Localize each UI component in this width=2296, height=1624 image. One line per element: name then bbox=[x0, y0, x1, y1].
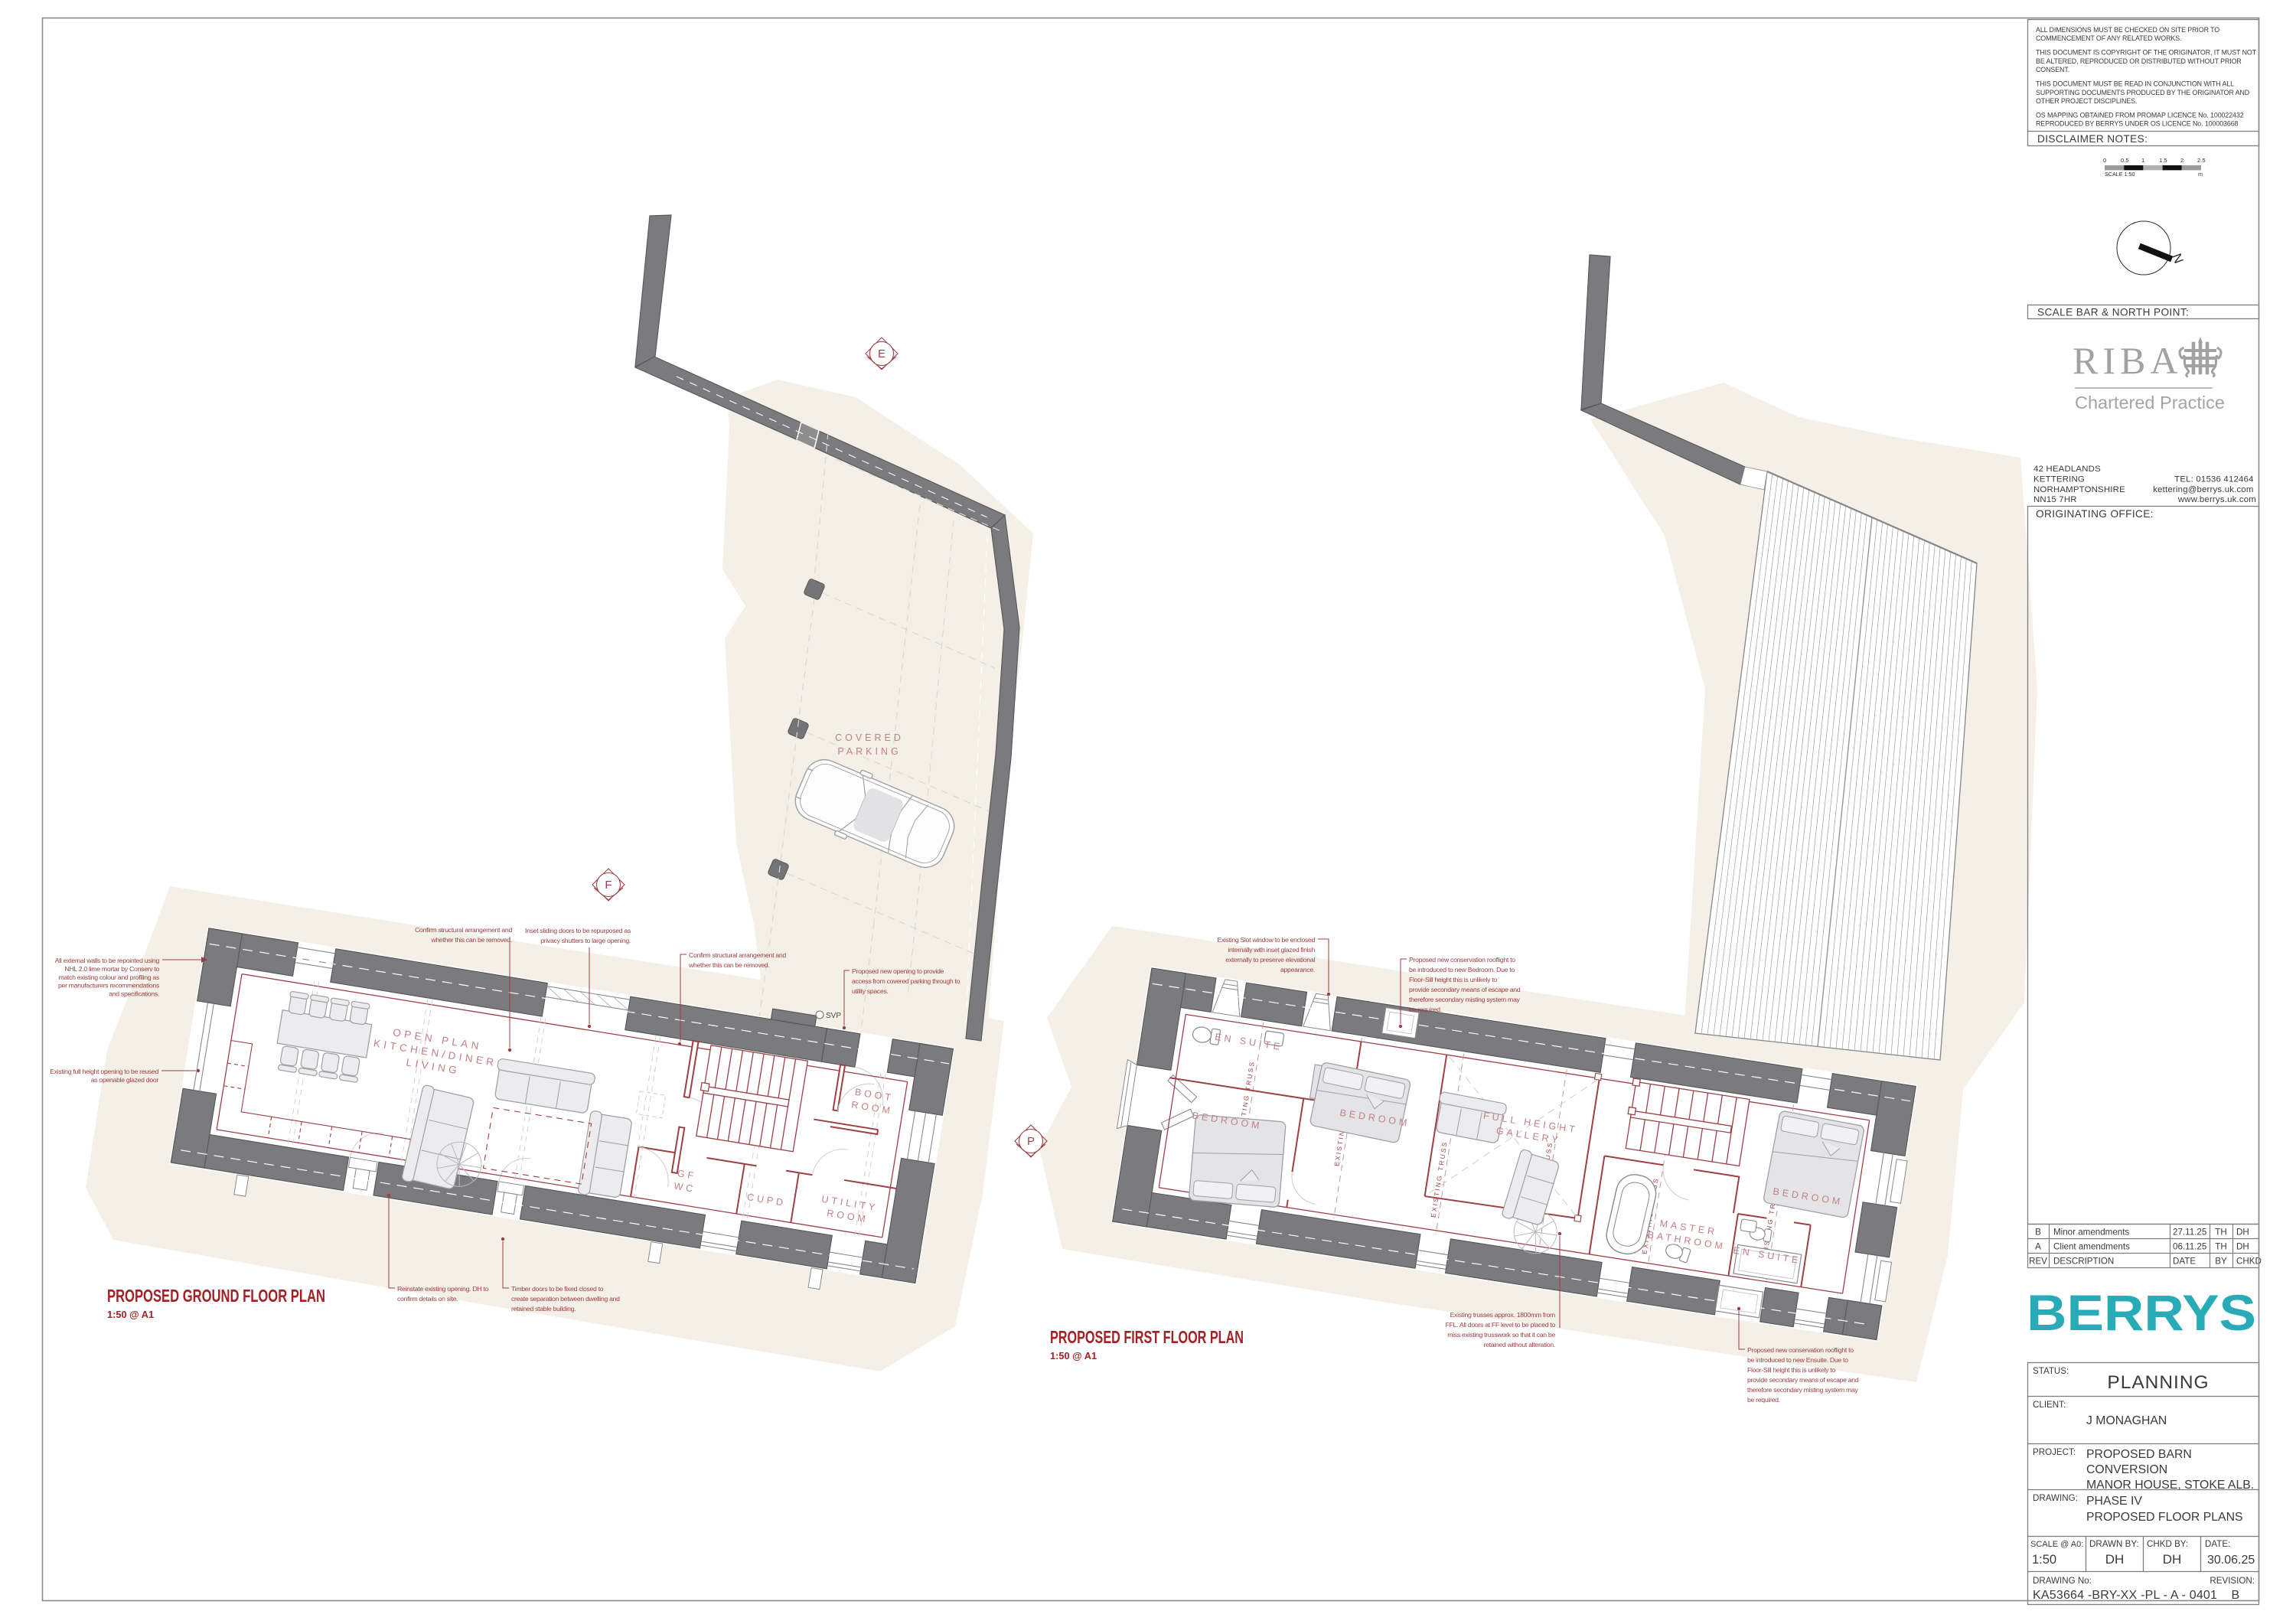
svg-text:E: E bbox=[878, 347, 885, 360]
svg-text:SCALE 1:50: SCALE 1:50 bbox=[2105, 171, 2135, 178]
svg-text:PARKING: PARKING bbox=[837, 746, 901, 757]
svg-text:DISCLAIMER NOTES:: DISCLAIMER NOTES: bbox=[2037, 133, 2148, 145]
svg-text:1:50 @ A1: 1:50 @ A1 bbox=[107, 1309, 154, 1320]
svg-text:CLIENT:: CLIENT: bbox=[2033, 1400, 2066, 1410]
svg-text:F: F bbox=[605, 879, 612, 892]
svg-text:RIBA: RIBA bbox=[2073, 339, 2182, 382]
svg-text:Client amendments: Client amendments bbox=[2053, 1242, 2130, 1252]
svg-text:SCALE @ A0:: SCALE @ A0: bbox=[2030, 1540, 2083, 1549]
svg-text:DESCRIPTION: DESCRIPTION bbox=[2053, 1257, 2114, 1267]
svg-text:DH: DH bbox=[2105, 1552, 2125, 1567]
svg-text:27.11.25: 27.11.25 bbox=[2173, 1228, 2206, 1238]
svg-text:TH: TH bbox=[2215, 1228, 2226, 1238]
svg-text:CHKD: CHKD bbox=[2236, 1257, 2262, 1267]
svg-text:CHKD BY:: CHKD BY: bbox=[2147, 1539, 2188, 1549]
svg-text:Chartered Practice: Chartered Practice bbox=[2075, 393, 2225, 413]
svg-text:TH: TH bbox=[2215, 1242, 2226, 1252]
svg-text:30.06.25: 30.06.25 bbox=[2207, 1554, 2255, 1567]
svg-text:P: P bbox=[1027, 1135, 1035, 1148]
svg-text:REV: REV bbox=[2029, 1257, 2047, 1267]
svg-text:COVERED: COVERED bbox=[835, 732, 904, 743]
svg-text:PROPOSED GROUND FLOOR PLAN: PROPOSED GROUND FLOOR PLAN bbox=[107, 1286, 325, 1306]
svg-text:REVISION:: REVISION: bbox=[2210, 1576, 2255, 1586]
svg-text:B: B bbox=[2035, 1228, 2041, 1238]
svg-text:1:50 @ A1: 1:50 @ A1 bbox=[1050, 1350, 1097, 1361]
svg-text:DRAWING No:: DRAWING No: bbox=[2033, 1576, 2092, 1586]
svg-text:BERRYS: BERRYS bbox=[2027, 1284, 2256, 1341]
svg-text:DH: DH bbox=[2163, 1552, 2182, 1567]
svg-text:DH: DH bbox=[2236, 1228, 2249, 1238]
svg-text:BY: BY bbox=[2215, 1257, 2227, 1267]
svg-text:KA53664 -BRY-XX -PL - A - 04: KA53664 -BRY-XX -PL - A - 0401 _ B bbox=[2033, 1589, 2239, 1602]
svg-text:DH: DH bbox=[2236, 1242, 2249, 1252]
svg-text:DRAWING:: DRAWING: bbox=[2033, 1493, 2078, 1503]
svg-text:PLANNING: PLANNING bbox=[2107, 1372, 2209, 1393]
svg-text:Minor amendments: Minor amendments bbox=[2053, 1228, 2129, 1238]
svg-text:PROPOSED FIRST FLOOR PLAN: PROPOSED FIRST FLOOR PLAN bbox=[1050, 1327, 1244, 1347]
svg-text:06.11.25: 06.11.25 bbox=[2173, 1242, 2206, 1252]
svg-text:PROJECT:: PROJECT: bbox=[2033, 1447, 2076, 1457]
svg-text:DATE:: DATE: bbox=[2205, 1539, 2230, 1549]
svg-text:DRAWN BY:: DRAWN BY: bbox=[2089, 1539, 2139, 1549]
svg-text:m: m bbox=[2198, 171, 2203, 178]
svg-text:SCALE BAR & NORTH POINT:: SCALE BAR & NORTH POINT: bbox=[2037, 307, 2189, 318]
svg-text:A: A bbox=[2035, 1242, 2041, 1252]
svg-text:ORIGINATING OFFICE:: ORIGINATING OFFICE: bbox=[2036, 508, 2154, 520]
svg-text:STATUS:: STATUS: bbox=[2033, 1366, 2069, 1376]
svg-text:DATE: DATE bbox=[2173, 1257, 2196, 1267]
svg-text:SVP: SVP bbox=[826, 1012, 841, 1020]
svg-text:1:50: 1:50 bbox=[2032, 1553, 2056, 1567]
svg-text:J MONAGHAN: J MONAGHAN bbox=[2086, 1414, 2167, 1427]
